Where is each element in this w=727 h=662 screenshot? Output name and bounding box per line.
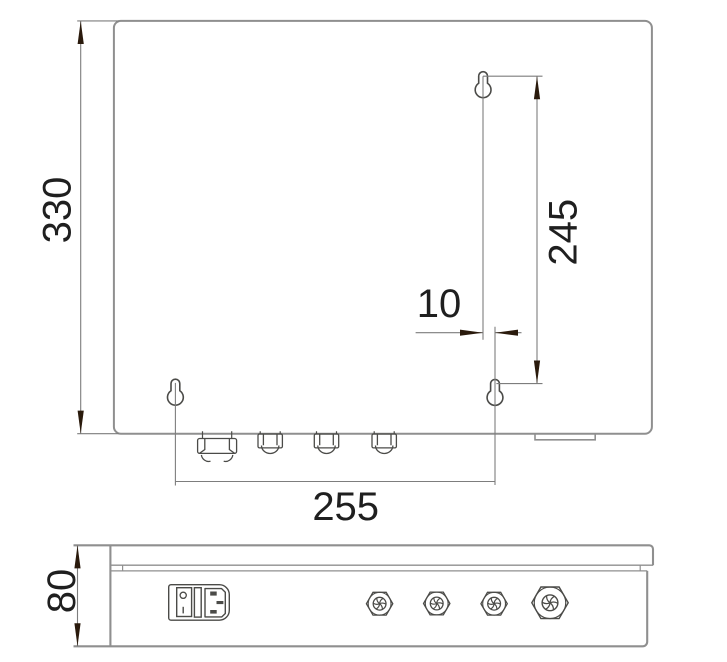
svg-text:10: 10 (417, 282, 462, 326)
svg-text:80: 80 (40, 569, 84, 614)
svg-text:245: 245 (542, 199, 586, 266)
svg-text:255: 255 (312, 485, 379, 529)
svg-text:330: 330 (36, 177, 80, 244)
